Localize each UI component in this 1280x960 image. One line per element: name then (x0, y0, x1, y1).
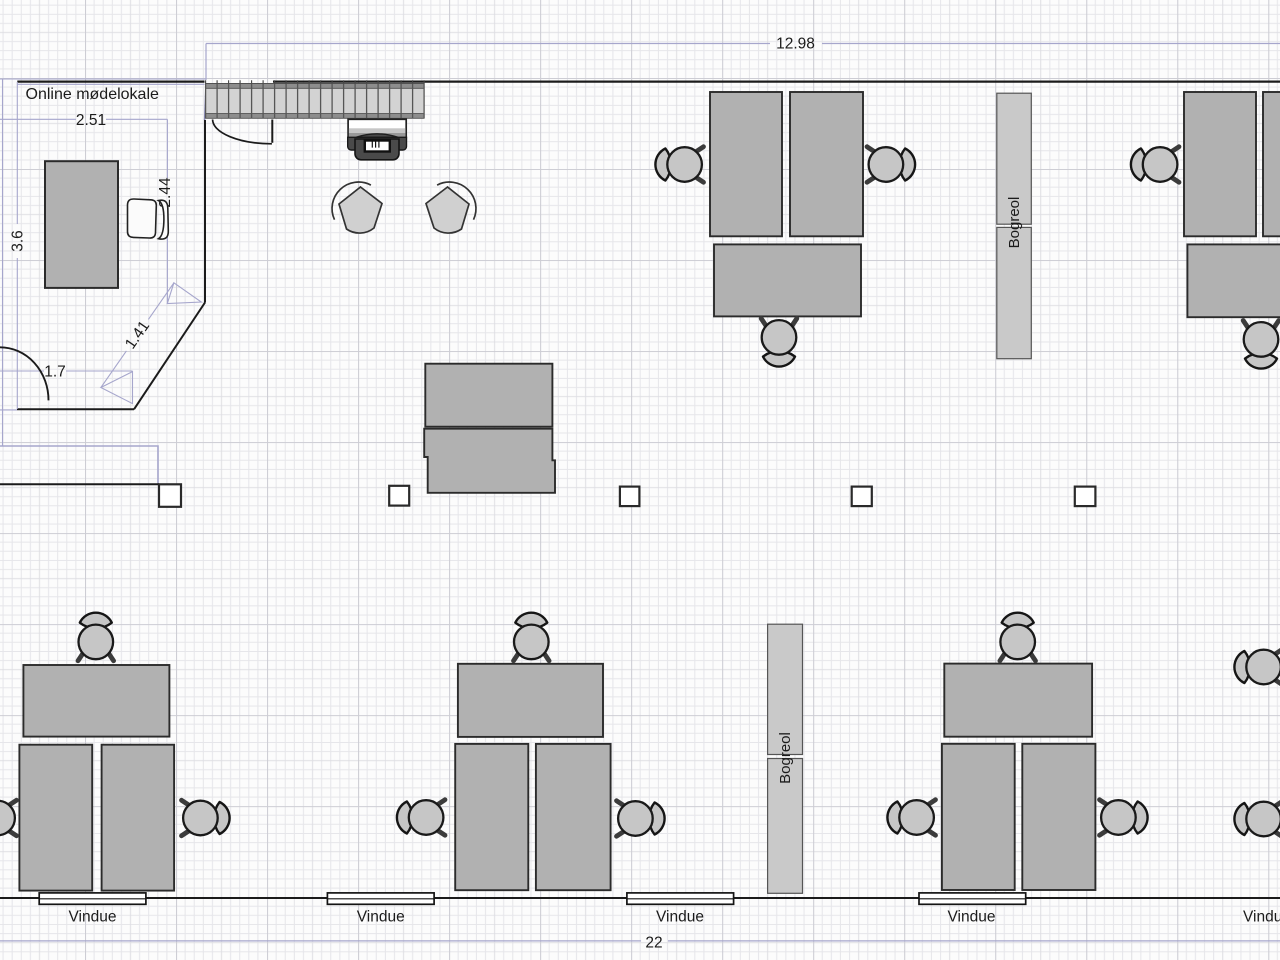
svg-text:12.98: 12.98 (776, 36, 815, 53)
svg-text:Vindue: Vindue (69, 909, 117, 926)
svg-text:Bogreol: Bogreol (1006, 197, 1023, 249)
svg-text:Online mødelokale: Online mødelokale (26, 86, 160, 103)
svg-text:22: 22 (645, 934, 662, 951)
svg-text:1.7: 1.7 (44, 364, 66, 381)
svg-text:Vindue: Vindue (357, 909, 405, 926)
svg-text:Vindue: Vindue (656, 909, 704, 926)
svg-text:Vindue: Vindue (948, 909, 996, 926)
svg-text:Bogreol: Bogreol (777, 732, 794, 784)
svg-text:Vindue: Vindue (1243, 909, 1280, 926)
svg-text:3.6: 3.6 (10, 230, 27, 252)
svg-text:2.51: 2.51 (76, 112, 106, 129)
